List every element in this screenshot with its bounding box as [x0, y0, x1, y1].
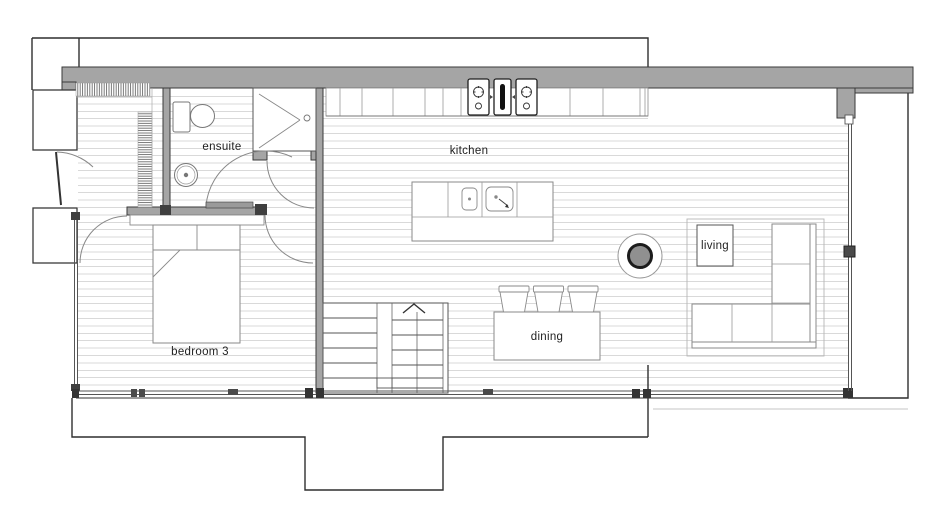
chair	[568, 286, 598, 312]
ensuite-door-swing	[206, 151, 292, 206]
north-wall-return	[837, 88, 855, 118]
kitchen-island	[412, 182, 553, 241]
west-pier-lower	[33, 208, 77, 263]
wardrobe-hanging-rail	[76, 83, 152, 207]
room-label-ensuite: ensuite	[202, 141, 241, 153]
bedhead	[130, 215, 264, 225]
glazing-connector	[845, 115, 853, 124]
sofa-back-bottom	[692, 342, 816, 348]
ensuite-west-wall	[163, 88, 170, 207]
dining-chairs	[499, 286, 598, 312]
west-entry-door	[56, 152, 93, 205]
stair-wall	[316, 88, 323, 393]
sofa-back-right	[810, 224, 816, 347]
fireplace	[618, 234, 662, 278]
south-glazed-wall	[76, 391, 848, 398]
chair	[499, 286, 529, 312]
floor-plan-drawing	[0, 0, 940, 511]
ensuite-door-leaf	[206, 202, 253, 208]
staircase	[323, 303, 448, 393]
hall-door-swing	[267, 161, 314, 208]
toilet	[173, 102, 215, 132]
shower	[253, 88, 316, 151]
west-piers	[33, 90, 77, 263]
wall-post	[71, 212, 80, 220]
room-label-living: living	[701, 240, 729, 252]
east-mullion	[844, 246, 855, 257]
chair	[534, 286, 564, 312]
floor-plan-canvas: ensuite kitchen living dining bedroom 3	[0, 0, 940, 511]
mullions	[72, 388, 853, 398]
grill-plate	[500, 84, 505, 110]
room-label-dining: dining	[531, 331, 564, 343]
washbasin	[175, 164, 198, 187]
cooktop	[468, 79, 537, 115]
bedroom-west-door-swing	[80, 216, 127, 263]
room-label-kitchen: kitchen	[450, 145, 489, 157]
floor-mask	[648, 88, 850, 119]
bedroom-east-door-swing	[265, 215, 313, 263]
double-bed	[130, 215, 264, 343]
west-pier-upper	[33, 90, 77, 150]
room-label-bedroom3: bedroom 3	[171, 346, 229, 358]
